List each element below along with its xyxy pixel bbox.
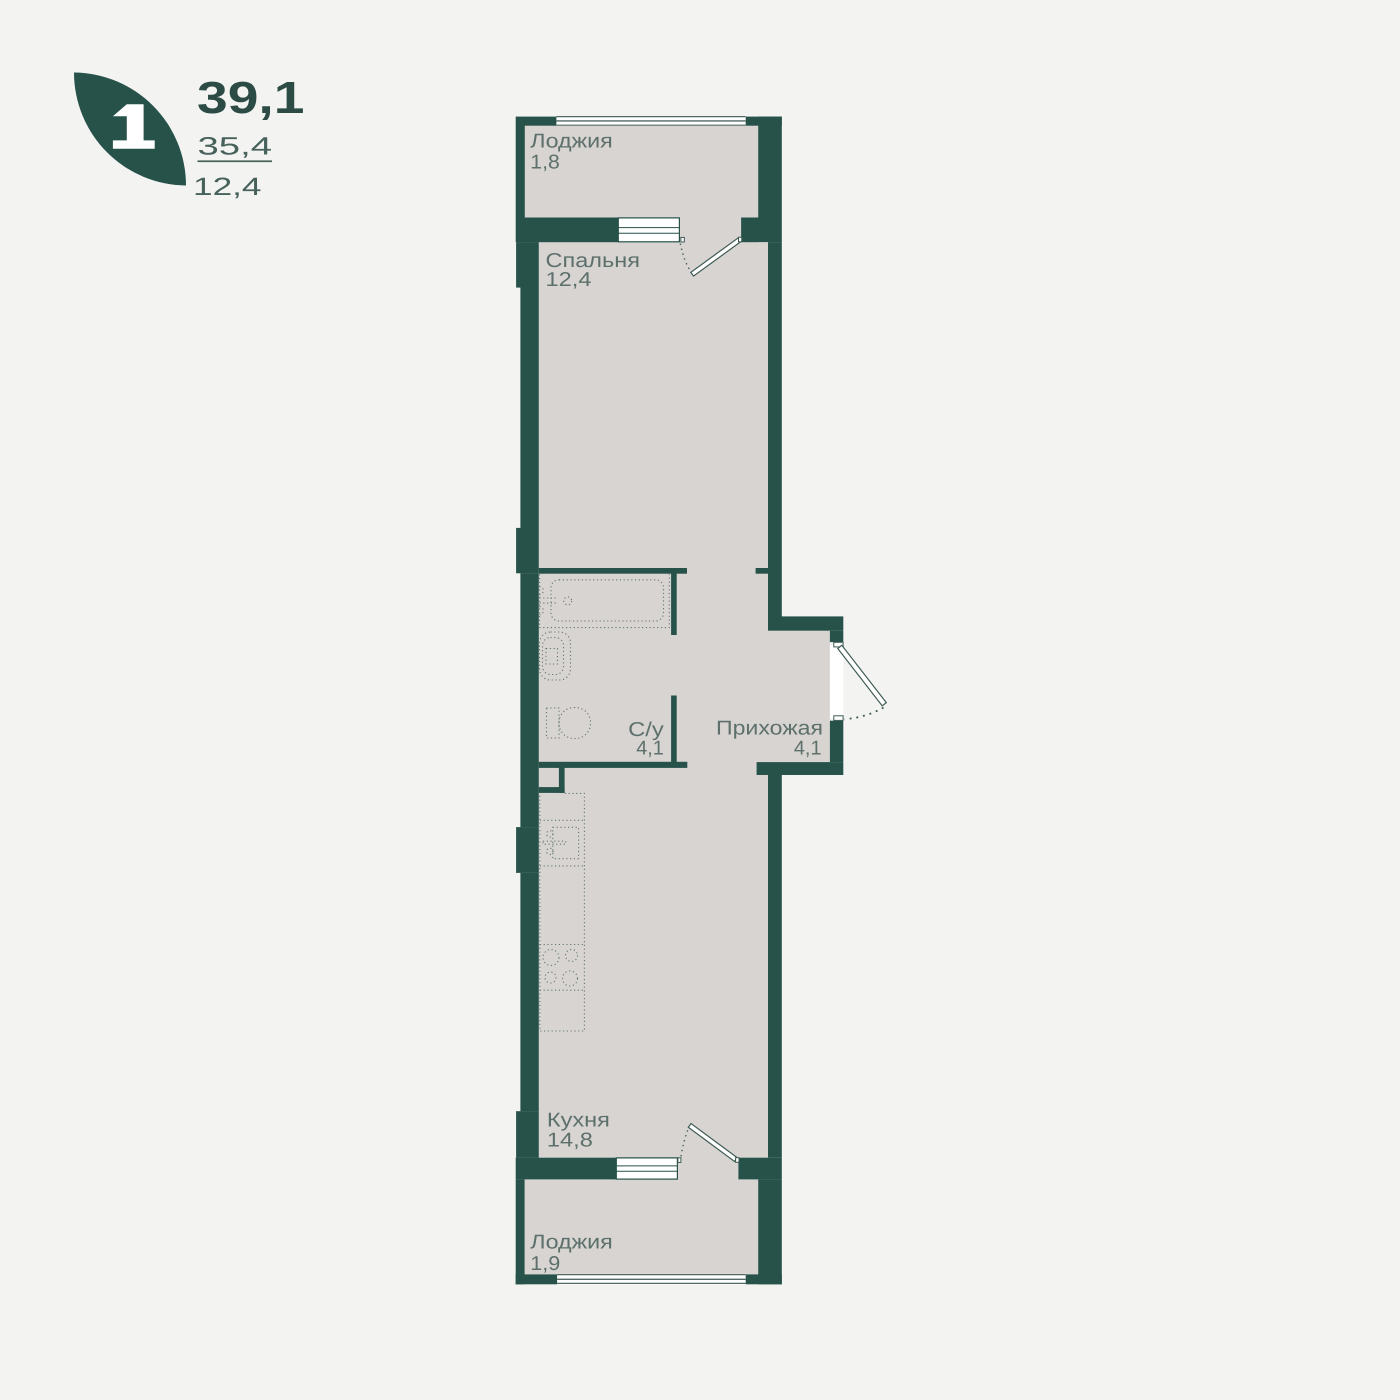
svg-text:Лоджия: Лоджия <box>530 130 613 152</box>
svg-text:4,1: 4,1 <box>636 738 664 760</box>
svg-text:Лоджия: Лоджия <box>530 1232 613 1254</box>
svg-text:1,9: 1,9 <box>530 1253 560 1275</box>
svg-text:14,8: 14,8 <box>547 1130 593 1152</box>
svg-text:12,4: 12,4 <box>546 269 592 291</box>
svg-text:1,8: 1,8 <box>530 151 560 173</box>
svg-text:39,1: 39,1 <box>197 72 305 123</box>
svg-text:12,4: 12,4 <box>193 173 262 201</box>
svg-text:4,1: 4,1 <box>794 738 822 760</box>
svg-text:35,4: 35,4 <box>198 133 273 161</box>
svg-text:Кухня: Кухня <box>547 1109 610 1131</box>
svg-text:Прихожая: Прихожая <box>716 717 823 739</box>
